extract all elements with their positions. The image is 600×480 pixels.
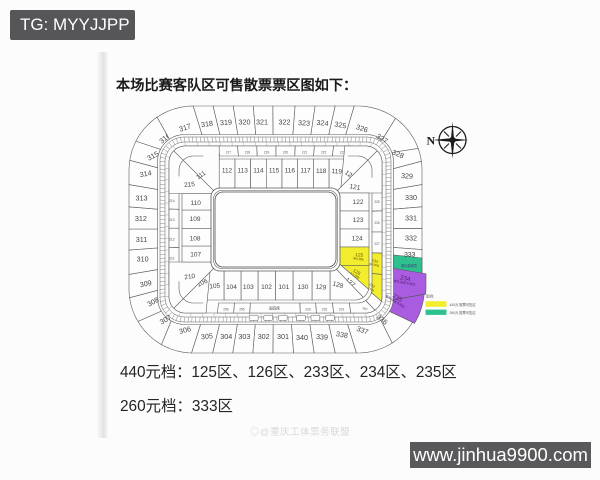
svg-text:301: 301 — [277, 332, 289, 341]
svg-text:105: 105 — [209, 283, 221, 291]
svg-text:322: 322 — [279, 117, 291, 126]
svg-text:218: 218 — [245, 150, 251, 154]
svg-text:320: 320 — [239, 117, 251, 126]
svg-text:221: 221 — [302, 150, 308, 154]
svg-text:305: 305 — [200, 331, 213, 341]
svg-text:114: 114 — [253, 168, 264, 175]
svg-text:109: 109 — [190, 216, 201, 223]
svg-text:103: 103 — [243, 284, 254, 291]
svg-text:220: 220 — [283, 150, 289, 154]
svg-text:310: 310 — [137, 255, 149, 264]
svg-text:214: 214 — [169, 199, 175, 203]
svg-text:102: 102 — [261, 284, 272, 291]
svg-text:119: 119 — [331, 168, 342, 176]
svg-text:311: 311 — [136, 235, 147, 244]
svg-text:319: 319 — [220, 117, 233, 127]
svg-text:302: 302 — [258, 332, 270, 341]
svg-text:324: 324 — [316, 118, 329, 128]
svg-text:101: 101 — [278, 284, 289, 291]
svg-text:110: 110 — [191, 200, 202, 207]
svg-text:107: 107 — [190, 251, 201, 258]
svg-text:122: 122 — [353, 199, 364, 206]
svg-text:304: 304 — [220, 332, 232, 341]
svg-text:117: 117 — [300, 168, 311, 175]
svg-text:227: 227 — [374, 242, 380, 246]
svg-text:440元 散票可售区: 440元 散票可售区 — [450, 302, 477, 307]
svg-text:N: N — [427, 134, 436, 148]
svg-text:213: 213 — [169, 218, 175, 222]
svg-text:113: 113 — [238, 168, 249, 175]
svg-text:104: 104 — [226, 284, 237, 291]
svg-text:340: 340 — [296, 333, 308, 342]
svg-text:129: 129 — [315, 284, 327, 292]
svg-text:205: 205 — [239, 307, 245, 311]
svg-text:303: 303 — [238, 332, 250, 341]
svg-text:108: 108 — [190, 235, 201, 242]
svg-text:330: 330 — [405, 193, 417, 202]
svg-text:332: 332 — [405, 233, 417, 242]
svg-text:211: 211 — [169, 257, 175, 261]
svg-text:118: 118 — [316, 168, 327, 175]
svg-text:312: 312 — [135, 214, 147, 223]
svg-text:318: 318 — [200, 119, 213, 130]
svg-text:203: 203 — [305, 307, 311, 311]
svg-text:202: 202 — [322, 307, 328, 311]
svg-text:124: 124 — [352, 235, 363, 242]
svg-text:115: 115 — [269, 168, 280, 175]
svg-text:260元 散票可售区: 260元 散票可售区 — [450, 310, 477, 315]
svg-text:130: 130 — [297, 284, 308, 291]
svg-text:222: 222 — [321, 150, 327, 154]
svg-text:321: 321 — [256, 117, 268, 126]
svg-text:329: 329 — [401, 171, 414, 181]
svg-text:112: 112 — [222, 168, 233, 175]
svg-text:201: 201 — [339, 307, 345, 311]
svg-text:331: 331 — [405, 214, 417, 223]
svg-text:国宾席: 国宾席 — [269, 306, 280, 311]
svg-text:206: 206 — [223, 307, 229, 311]
svg-text:333: 333 — [404, 251, 416, 258]
svg-text:219: 219 — [264, 150, 270, 154]
svg-text:123: 123 — [353, 217, 364, 224]
svg-text:215: 215 — [184, 181, 196, 189]
svg-text:212: 212 — [169, 237, 175, 241]
svg-text:图例:: 图例: — [426, 294, 434, 299]
svg-text:339: 339 — [316, 332, 329, 342]
svg-text:313: 313 — [136, 194, 148, 203]
svg-text:俱乐部成员: 俱乐部成员 — [401, 263, 417, 268]
svg-text:323: 323 — [298, 118, 310, 128]
svg-text:225: 225 — [374, 200, 380, 204]
svg-text:116: 116 — [285, 168, 296, 175]
svg-text:226: 226 — [374, 221, 380, 225]
svg-text:217: 217 — [226, 150, 232, 154]
